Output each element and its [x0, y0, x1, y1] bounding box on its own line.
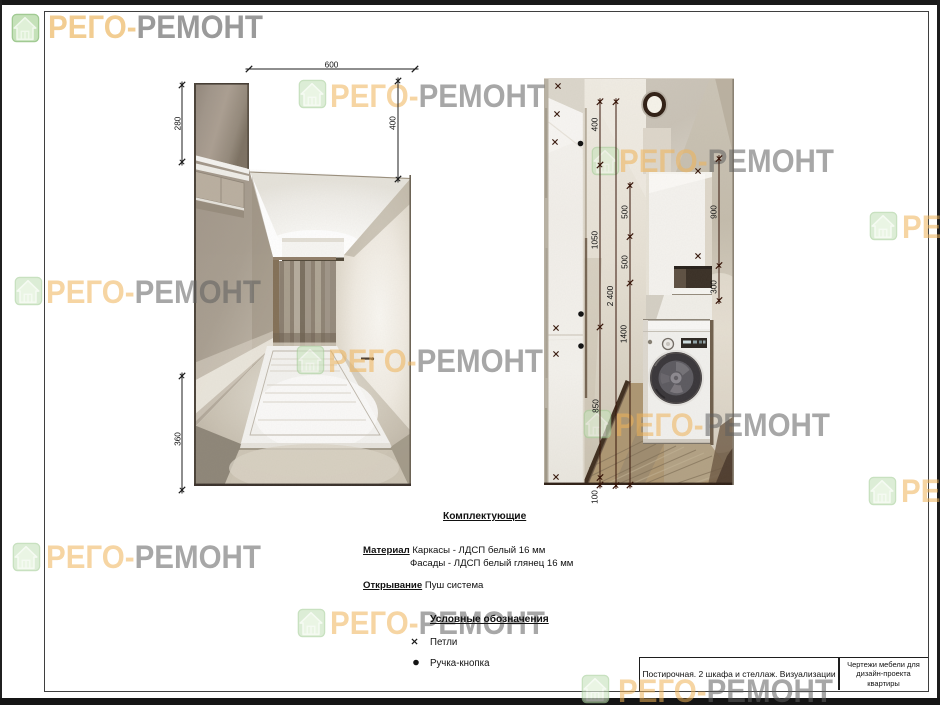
- svg-text:600: 600: [325, 61, 339, 70]
- svg-text:2 400: 2 400: [606, 285, 615, 306]
- svg-text:850: 850: [592, 399, 601, 413]
- svg-text:100: 100: [591, 490, 600, 504]
- svg-text:300: 300: [710, 280, 719, 294]
- svg-text:400: 400: [389, 116, 398, 130]
- svg-text:500: 500: [621, 205, 630, 219]
- svg-text:400: 400: [591, 117, 600, 131]
- svg-text:900: 900: [710, 205, 719, 219]
- svg-text:1400: 1400: [620, 324, 629, 343]
- svg-text:280: 280: [174, 116, 183, 130]
- svg-text:360: 360: [174, 432, 183, 446]
- svg-text:500: 500: [621, 255, 630, 269]
- svg-text:1050: 1050: [591, 230, 600, 249]
